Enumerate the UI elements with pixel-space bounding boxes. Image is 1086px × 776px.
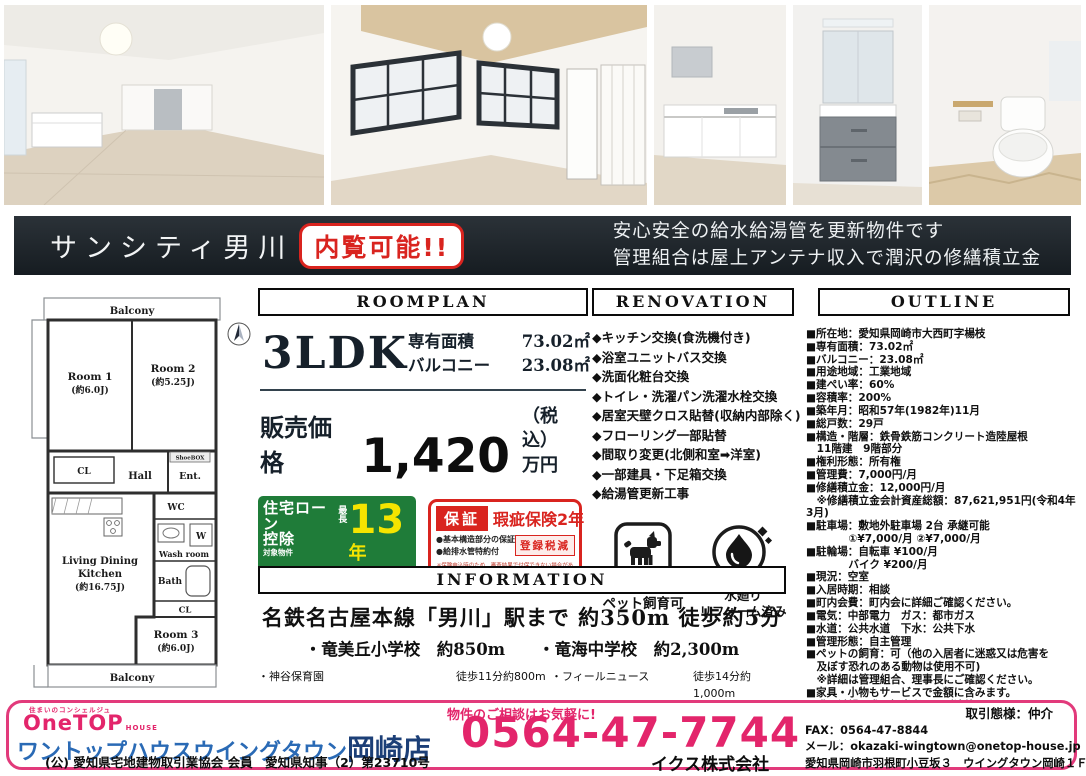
place-name-right: ・フィールニュース [551,669,693,702]
fp-bath: Bath [158,577,183,587]
outline-list: ■所在地：愛知県岡崎市大西町字楊枝■専有面積：73.02㎡■バルコニー：23.0… [806,328,1082,725]
fp-balcony-bottom: Balcony [110,673,156,684]
outline-item: ■駐輪場：自転車 ¥100/月 [806,546,1082,559]
contact-details-block: 取引態様：仲介 FAX：0564-47-8844 メール：okazaki-win… [805,705,1077,772]
fp-hall: Hall [128,471,152,482]
outline-item: ■管理費：7,000円/月 [806,469,1082,482]
banner-message: 安心安全の給水給湯管を更新物件です 管理組合は屋上アンテナ収入で潤沢の修繕積立金 [613,219,1041,273]
outline-item: ■入居時期：相談 [806,584,1082,597]
loan-title: 住宅ローン 控除 対象物件 [263,501,330,557]
outline-item: 11階建 9階部分 [806,443,1082,456]
outline-item: ※詳細は管理組合、理事長にご確認ください。 [806,674,1082,687]
outline-item: ■駐車場：敷地外駐車場 2台 承継可能 [806,520,1082,533]
renovation-list: ◆キッチン交換(食洗機付き)◆浴室ユニットバス交換◆洗面化粧台交換◆トイレ・洗濯… [592,328,794,504]
layout-type: 3LDK [262,328,408,379]
outline-item: ※修繕積立金会計資産総額：87,621,951円(令和4年3月) [806,495,1082,521]
fp-w: W [195,532,207,542]
fp-cl-lower: CL [179,606,192,616]
place-name-left: ・神谷保育園 [258,669,456,702]
outline-item: バイク ¥200/月 [806,559,1082,572]
place-row: ・神谷保育園 徒歩11分約800m ・フィールニュース 徒歩14分約1,000m [258,669,786,702]
room-with-black-windows-illustration [331,5,647,205]
photo-kitchen [654,5,786,205]
price-value: 1,420 [361,436,510,478]
fp-room3: Room 3 [154,629,199,641]
loan-years: 13 [349,497,405,543]
fp-wc: WC [166,503,184,513]
renovation-item: ◆フローリング一部貼替 [592,426,794,446]
fp-ldk-size: (約16.75J) [75,581,125,593]
renovation-header: RENOVATION [592,288,794,316]
floor-plan-drawing: Balcony Room 1 (約6.0J) Room 2 (約5.25J) C… [18,286,256,696]
address-line: 愛知県岡崎市羽根町小豆坂３ ウイングタウン岡崎１Ｆ [805,756,1077,772]
outline-item: ■容積率：200% [806,392,1082,405]
outline-item: ■バルコニー：23.08㎡ [806,354,1082,367]
loan-title-line2: 控除 [263,530,295,548]
outline-item: ■建ぺい率：60% [806,379,1082,392]
outline-item: ■電気：中部電力 ガス：都市ガス [806,610,1082,623]
divider [260,389,586,391]
photo-toilet [929,5,1081,205]
outline-item: ■修繕積立金：12,000円/月 [806,482,1082,495]
banner-message-line1: 安心安全の給水給湯管を更新物件です [613,219,1041,246]
fp-shoebox: ShoeBOX [176,456,206,462]
photo-living-dining [4,5,324,205]
outline-item: ■専有面積：73.02㎡ [806,341,1082,354]
price-row: 販売価格 1,420 （税込） 万円 [258,405,588,478]
agency-footer: 住まいのコンシェルジュ OneTOPHOUSE ワントップハウスウイングタウン岡… [6,700,1077,770]
tax-note: （税込） [522,406,558,451]
fax-line: FAX：0564-47-8844 [805,723,1077,739]
area-details: 専有面積 73.02㎡ バルコニー 23.08㎡ [408,330,590,378]
loan-max-label: 最長 [338,507,347,526]
loan-years-unit: 年 [349,543,367,564]
agency-company-name: イクス株式会社 [651,750,769,775]
outline-item: ■管理形態：自主管理 [806,636,1082,649]
warranty-point1: ●基本構造部分の保証 [436,534,515,546]
photo-western-room-windows [331,5,647,205]
balcony-area-value: 23.08㎡ [522,354,590,378]
outline-item: ■ペットの飼育：可（他の入居者に迷惑又は危害を [806,648,1082,661]
exclusive-area-value: 73.02㎡ [522,330,590,354]
viewing-available-badge: 内覧可能!! [299,223,464,269]
outline-section: OUTLINE ■所在地：愛知県岡崎市大西町字楊枝■専有面積：73.02㎡■バル… [806,288,1082,725]
photo-strip [4,5,1082,205]
warranty-point2: ●給排水管特約付 [436,546,515,558]
warranty-title: 瑕疵保険2年 [493,506,584,530]
price-unit: 万円 [522,455,558,476]
place-distance-left: 徒歩11分約800m [456,669,551,702]
roomplan-section: ROOMPLAN 3LDK 専有面積 73.02㎡ バルコニー 23.08㎡ 販… [258,288,588,588]
renovation-item: ◆浴室ユニットバス交換 [592,348,794,368]
banner-message-line2: 管理組合は屋上アンテナ収入で潤沢の修繕積立金 [613,246,1041,273]
toilet-illustration [929,5,1081,205]
outline-header: OUTLINE [818,288,1070,316]
place-distance-right: 徒歩14分約1,000m [693,669,786,702]
outline-item: ■現況：空室 [806,571,1082,584]
outline-item: ■総戸数：29戸 [806,418,1082,431]
renovation-item: ◆間取り変更(北側和室➡洋室) [592,445,794,465]
warranty-label: 保証 [436,506,488,531]
outline-item: ■用途地域：工業地域 [806,366,1082,379]
renovation-item: ◆洗面化粧台交換 [592,367,794,387]
renovation-item: ◆居室天壁クロス貼替(収納内部除く) [592,406,794,426]
fp-balcony-top: Balcony [110,306,156,317]
fp-room2-size: (約5.25J) [151,376,195,388]
schools-line: ・竜美丘小学校 約850m ・竜海中学校 約2,300m [258,636,786,660]
exclusive-area-label: 専有面積 [408,330,474,354]
renovation-item: ◆給湯管更新工事 [592,484,794,504]
fp-ent: Ent. [179,471,201,482]
outline-item: ■築年月：昭和57年(1982年)11月 [806,405,1082,418]
loan-subject: 対象物件 [263,549,330,557]
outline-item: ■構造・階層：鉄骨鉄筋コンクリート造陸屋根 [806,431,1082,444]
living-room-illustration [4,5,324,205]
phone-number: 0564-47-7744 [461,712,800,754]
renovation-item: ◆一部建具・下足箱交換 [592,465,794,485]
balcony-area-label: バルコニー [408,354,490,378]
price-label: 販売価格 [260,408,345,478]
outline-item: ■所在地：愛知県岡崎市大西町字楊枝 [806,328,1082,341]
outline-item: ■町内会費：町内会に詳細ご確認ください。 [806,597,1082,610]
photo-washroom-vanity [793,5,922,205]
information-header: INFORMATION [258,566,786,594]
outline-item: ■権利形態：所有権 [806,456,1082,469]
outline-item: ①¥7,000/月 ②¥7,000/月 [806,533,1082,546]
deal-type: 取引態様：仲介 [805,705,1077,723]
fp-washroom: Wash room [158,549,209,559]
fp-ldk-line2: Kitchen [78,569,123,580]
station-access-line: 名鉄名古屋本線「男川」駅まで 約350m 徒歩約5分 [258,602,786,632]
renovation-item: ◆キッチン交換(食洗機付き) [592,328,794,348]
outline-item: ■水道：公共水道 下水：公共下水 [806,623,1082,636]
kitchen-illustration [654,5,786,205]
outline-item: ■家具・小物もサービスで金額に含みます。 [806,687,1082,700]
outline-item: 及ぼす恐れのある動物は使用不可) [806,661,1082,674]
washroom-illustration [793,5,922,205]
roomplan-header: ROOMPLAN [258,288,588,316]
compass-icon [228,323,250,345]
fp-room2: Room 2 [151,363,196,375]
property-title: サンシティ男川 [50,226,293,265]
fp-room3-size: (約6.0J) [157,642,194,654]
warranty-points: ●基本構造部分の保証 ●給排水管特約付 [436,534,515,558]
price-unit-block: （税込） 万円 [522,405,586,478]
fp-room1-size: (約6.0J) [71,384,108,396]
flyer-page: サンシティ男川 内覧可能!! 安心安全の給水給湯管を更新物件です 管理組合は屋上… [0,0,1086,776]
fp-cl-upper: CL [77,467,91,477]
registration-tax-label: 登録税減 [515,535,575,556]
renovation-item: ◆トイレ・洗濯パン洗濯水栓交換 [592,387,794,407]
license-line: (公) 愛知県宅地建物取引業協会 会員 愛知県知事（2）第23710号 [45,752,430,771]
loan-title-line1: 住宅ローン [263,499,327,533]
title-banner: サンシティ男川 内覧可能!! 安心安全の給水給湯管を更新物件です 管理組合は屋上… [14,216,1071,275]
email-line: メール：okazaki-wingtown@onetop-house.jp [805,739,1077,755]
fp-ldk-line1: Living Dining [62,556,138,567]
fp-room1: Room 1 [68,371,113,383]
floor-plan: Balcony Room 1 (約6.0J) Room 2 (約5.25J) C… [18,286,256,696]
